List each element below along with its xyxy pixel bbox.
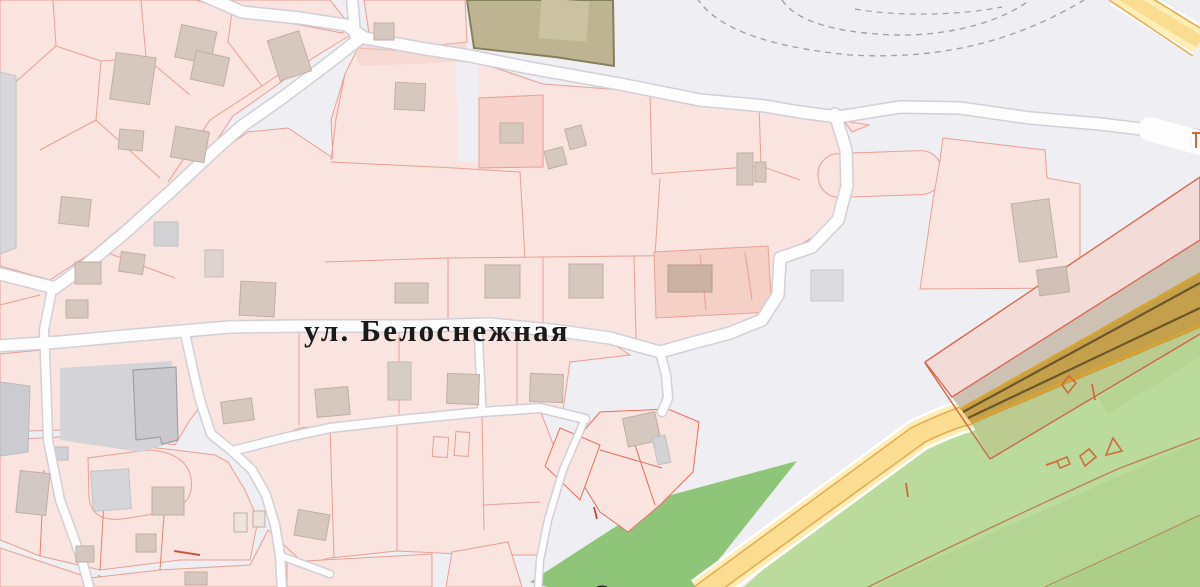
- svg-text:ул. Белоснежная: ул. Белоснежная: [304, 313, 570, 348]
- svg-text:ул. Отрадная: ул. Отрадная: [552, 580, 708, 587]
